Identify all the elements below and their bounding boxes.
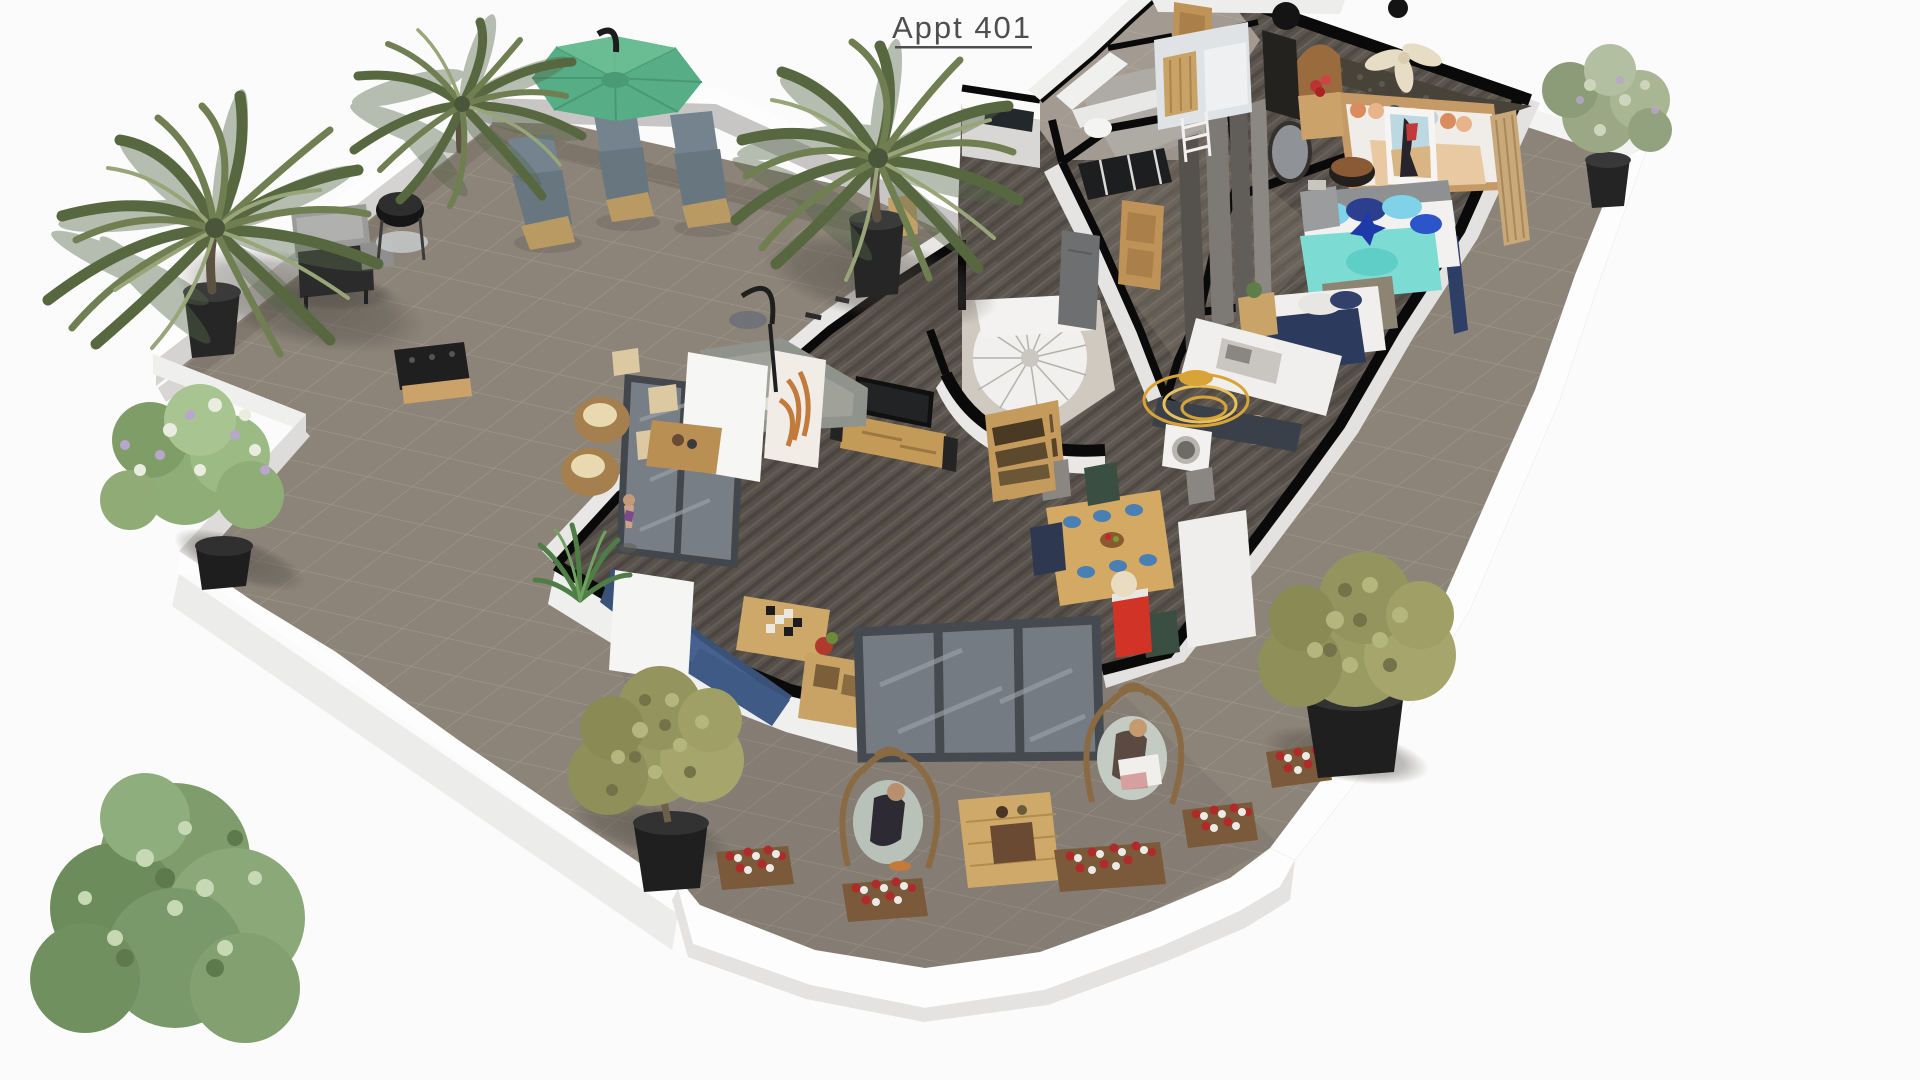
svg-text:Appt 401: Appt 401	[892, 10, 1032, 45]
